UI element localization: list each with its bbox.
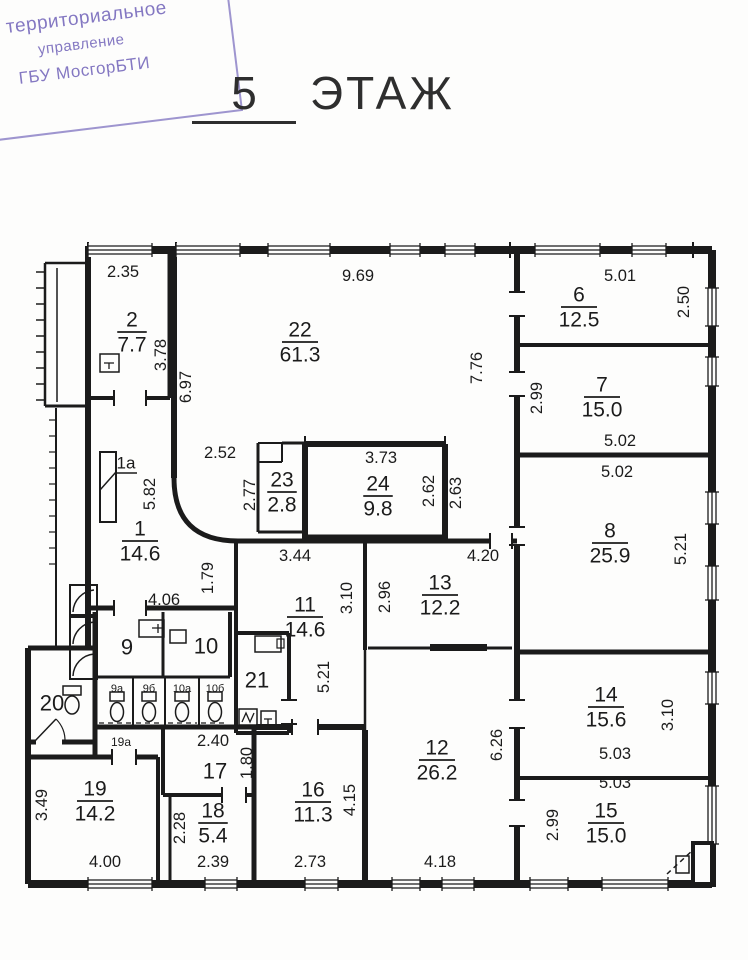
toilet-bowl <box>111 703 124 722</box>
label-1a: 1a <box>117 454 136 473</box>
room-area: 7.7 <box>117 334 146 357</box>
room-number: 7 <box>596 374 608 397</box>
room-area: 15.6 <box>586 709 627 732</box>
dim-1.80: 1.80 <box>238 747 256 779</box>
dim-6.97: 6.97 <box>177 371 195 403</box>
room-11-label: 1114.6 <box>285 594 326 642</box>
room-19-label: 1914.2 <box>75 778 116 826</box>
dim-5.03: 5.03 <box>599 774 631 792</box>
dim-3.10: 3.10 <box>659 699 677 731</box>
room-area: 15.0 <box>586 825 627 848</box>
dim-5.82: 5.82 <box>141 478 159 510</box>
room-area: 26.2 <box>417 762 458 785</box>
room-number: 15 <box>594 800 617 823</box>
dim-5.21: 5.21 <box>315 661 333 693</box>
room-area: 14.6 <box>285 619 326 642</box>
room-1-label: 114.6 <box>120 518 161 566</box>
room-number: 6 <box>573 284 585 307</box>
room-8-label: 825.9 <box>590 520 631 568</box>
floor-plan-svg: 2.359.695.012.503.786.977.762.992.525.02… <box>0 0 748 960</box>
dim-5.02: 5.02 <box>604 432 636 450</box>
label-21: 21 <box>245 668 269 693</box>
toilet-bowl <box>143 703 156 722</box>
duct-room15 <box>676 856 689 873</box>
room-number: 8 <box>604 520 616 543</box>
dim-9.69: 9.69 <box>342 267 374 285</box>
room-number: 14 <box>594 684 618 707</box>
dim-6.26: 6.26 <box>488 729 506 761</box>
room-15-label: 1515.0 <box>586 800 627 848</box>
scanned-floor-plan-page: е территориальное управление ГБУ МосгорБ… <box>0 0 748 960</box>
toilet-bowl <box>65 696 79 714</box>
dim-4.00: 4.00 <box>89 853 121 871</box>
dim-2.28: 2.28 <box>171 812 189 844</box>
room-23-label: 232.8 <box>267 469 297 517</box>
room-area: 12.2 <box>420 597 461 620</box>
room-24-label: 249.8 <box>363 473 393 521</box>
room-7-label: 715.0 <box>582 374 623 422</box>
room-area: 2.8 <box>267 494 296 517</box>
dim-2.73: 2.73 <box>294 853 326 871</box>
dim-2.77: 2.77 <box>241 479 259 511</box>
dim-7.76: 7.76 <box>468 352 486 384</box>
room-area: 15.0 <box>582 399 623 422</box>
dim-2.35: 2.35 <box>107 263 139 281</box>
room-area: 14.2 <box>75 803 116 826</box>
room-area: 12.5 <box>559 309 600 332</box>
corner-pier <box>693 843 712 884</box>
dim-5.01: 5.01 <box>604 267 636 285</box>
label-9а: 9а <box>111 683 124 695</box>
room-6-label: 612.5 <box>559 284 600 332</box>
toilet-bowl <box>176 703 189 722</box>
room-number: 11 <box>294 594 316 617</box>
room-12-label: 1226.2 <box>417 737 458 785</box>
dim-2.96: 2.96 <box>376 581 394 613</box>
dim-2.99: 2.99 <box>544 809 562 841</box>
dim-2.63: 2.63 <box>447 477 465 509</box>
room-area: 25.9 <box>590 545 631 568</box>
dim-3.73: 3.73 <box>365 449 397 467</box>
room-2-label: 27.7 <box>117 309 147 357</box>
room-number: 2 <box>126 309 138 332</box>
room-14-label: 1415.6 <box>586 684 627 732</box>
dim-3.10: 3.10 <box>338 582 356 614</box>
label-10б: 10б <box>206 683 225 695</box>
label-9: 9 <box>121 635 133 660</box>
toilet-bowl <box>209 703 222 722</box>
room-number: 24 <box>366 473 390 496</box>
dim-3.78: 3.78 <box>152 339 170 371</box>
door-sill <box>430 644 487 651</box>
room-number: 19 <box>83 778 106 801</box>
room-area: 11.3 <box>293 804 332 827</box>
label-9б: 9б <box>143 683 155 695</box>
dim-2.40: 2.40 <box>197 732 229 750</box>
sink-room10 <box>170 630 186 643</box>
dim-2.50: 2.50 <box>675 286 693 318</box>
dim-5.21: 5.21 <box>672 533 690 565</box>
dim-4.18: 4.18 <box>424 853 456 871</box>
label-19а: 19а <box>111 735 131 749</box>
door-jambs <box>88 242 693 826</box>
dim-3.44: 3.44 <box>279 547 311 565</box>
label-10: 10 <box>194 634 218 659</box>
dim-2.99: 2.99 <box>528 382 546 414</box>
room-number: 12 <box>425 737 448 760</box>
floor-plan-drawing: 2.359.695.012.503.786.977.762.992.525.02… <box>0 0 748 960</box>
label-20: 20 <box>40 691 64 716</box>
label-10а: 10а <box>173 683 192 695</box>
dim-1.79: 1.79 <box>199 562 217 594</box>
room-area: 5.4 <box>198 825 228 848</box>
dim-4.06: 4.06 <box>148 591 180 609</box>
dim-4.20: 4.20 <box>467 547 499 565</box>
room-13-label: 1312.2 <box>420 572 461 620</box>
room-18-label: 185.4 <box>198 800 228 848</box>
room-16-label: 1611.3 <box>293 779 332 827</box>
dim-2.62: 2.62 <box>420 475 438 507</box>
dim-2.39: 2.39 <box>197 853 229 871</box>
room-number: 18 <box>201 800 224 823</box>
wc-tank-room20 <box>63 686 81 695</box>
room-number: 13 <box>428 572 451 595</box>
dim-5.03: 5.03 <box>599 745 631 763</box>
room-area: 14.6 <box>120 543 161 566</box>
dim-2.52: 2.52 <box>204 444 236 462</box>
dim-5.02: 5.02 <box>601 463 633 481</box>
dim-4.15: 4.15 <box>341 784 359 816</box>
label-17: 17 <box>203 759 227 784</box>
room-22-label: 2261.3 <box>280 319 321 367</box>
dim-3.49: 3.49 <box>33 789 51 821</box>
room-area: 9.8 <box>363 498 392 521</box>
room-number: 1 <box>134 518 146 541</box>
room-number: 22 <box>288 319 311 342</box>
room-number: 16 <box>301 779 324 802</box>
room-area: 61.3 <box>280 344 321 367</box>
room-number: 23 <box>270 469 293 492</box>
